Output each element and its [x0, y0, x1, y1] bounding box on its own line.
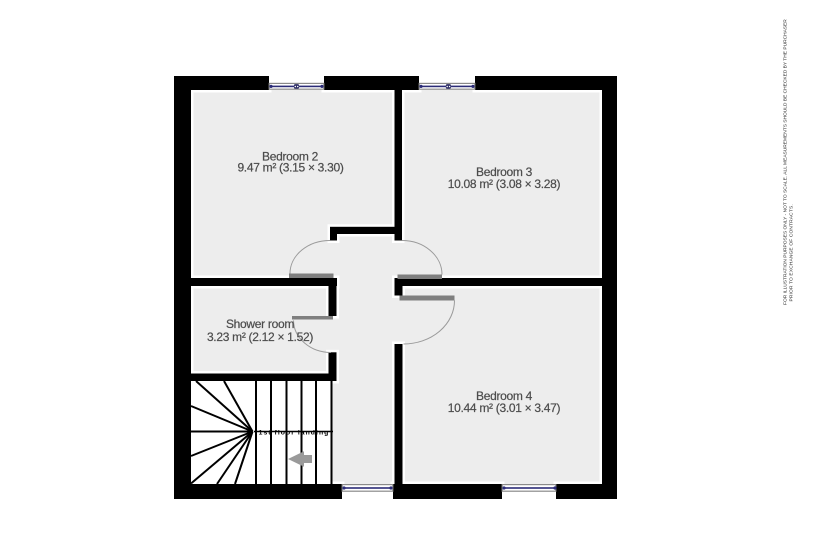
svg-text:10.08 m² (3.08 × 3.28): 10.08 m² (3.08 × 3.28)	[448, 177, 561, 191]
svg-text:10.44 m² (3.01 × 3.47): 10.44 m² (3.01 × 3.47)	[448, 401, 561, 415]
svg-text:9.47 m² (3.15 × 3.30): 9.47 m² (3.15 × 3.30)	[237, 161, 343, 175]
svg-text:3.23 m² (2.12 × 1.52): 3.23 m² (2.12 × 1.52)	[207, 330, 313, 344]
svg-text:Shower room: Shower room	[226, 317, 294, 331]
svg-text:PRIOR TO EXCHANGE OF CONTRACTS: PRIOR TO EXCHANGE OF CONTRACTS.	[789, 204, 795, 301]
svg-text:1st floor landing: 1st floor landing	[259, 430, 330, 437]
svg-text:FOR ILLUSTRATION PURPOSES ONLY: FOR ILLUSTRATION PURPOSES ONLY - NOT TO …	[783, 19, 789, 305]
